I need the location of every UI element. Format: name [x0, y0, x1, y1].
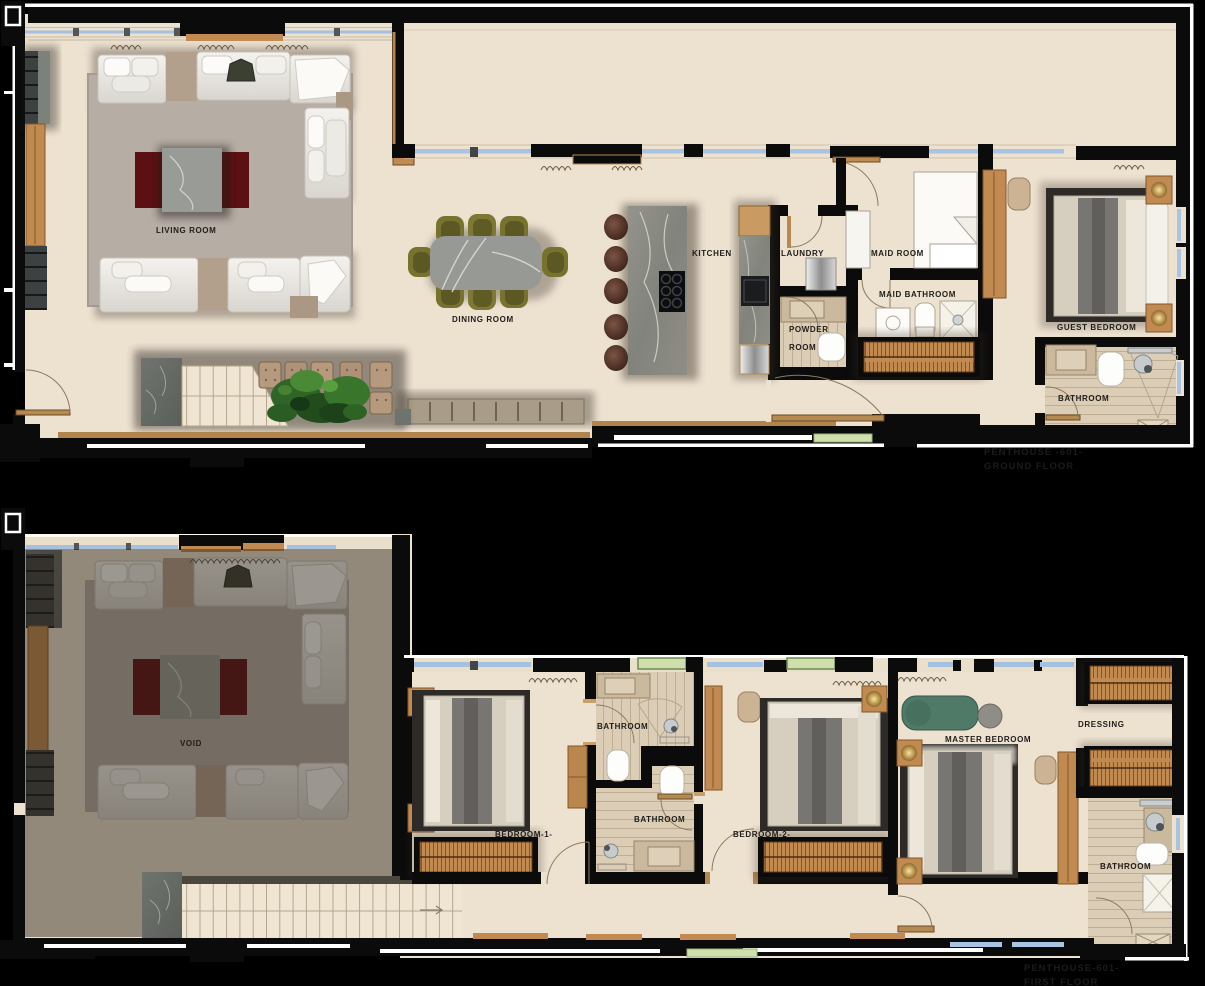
svg-text:BATHROOM: BATHROOM — [1100, 862, 1151, 871]
svg-text:LIVING ROOM: LIVING ROOM — [156, 226, 216, 235]
svg-text:VOID: VOID — [180, 739, 202, 748]
svg-text:BEDROOM-1-: BEDROOM-1- — [495, 830, 553, 839]
svg-text:KITCHEN: KITCHEN — [692, 249, 732, 258]
svg-text:BEDROOM-2-: BEDROOM-2- — [733, 830, 791, 839]
svg-text:MAID ROOM: MAID ROOM — [871, 249, 924, 258]
svg-text:MASTER BEDROOM: MASTER BEDROOM — [945, 735, 1031, 744]
svg-text:GUEST BEDROOM: GUEST BEDROOM — [1057, 323, 1136, 332]
svg-text:ROOM: ROOM — [789, 343, 816, 352]
svg-text:DRESSING: DRESSING — [1078, 720, 1125, 729]
svg-text:PENTHOUSE -601-: PENTHOUSE -601- — [984, 447, 1083, 458]
svg-text:POWDER: POWDER — [789, 325, 829, 334]
svg-text:BATHROOM: BATHROOM — [597, 722, 648, 731]
svg-text:BATHROOM: BATHROOM — [634, 815, 685, 824]
svg-text:MAID BATHROOM: MAID BATHROOM — [879, 290, 956, 299]
svg-text:DINING ROOM: DINING ROOM — [452, 315, 514, 324]
svg-text:BATHROOM: BATHROOM — [1058, 394, 1109, 403]
svg-text:PENTHOUSE-601-: PENTHOUSE-601- — [1024, 963, 1119, 974]
svg-text:LAUNDRY: LAUNDRY — [781, 249, 824, 258]
svg-text:GROUND FLOOR: GROUND FLOOR — [984, 461, 1074, 472]
svg-text:FIRST FLOOR: FIRST FLOOR — [1024, 977, 1098, 986]
